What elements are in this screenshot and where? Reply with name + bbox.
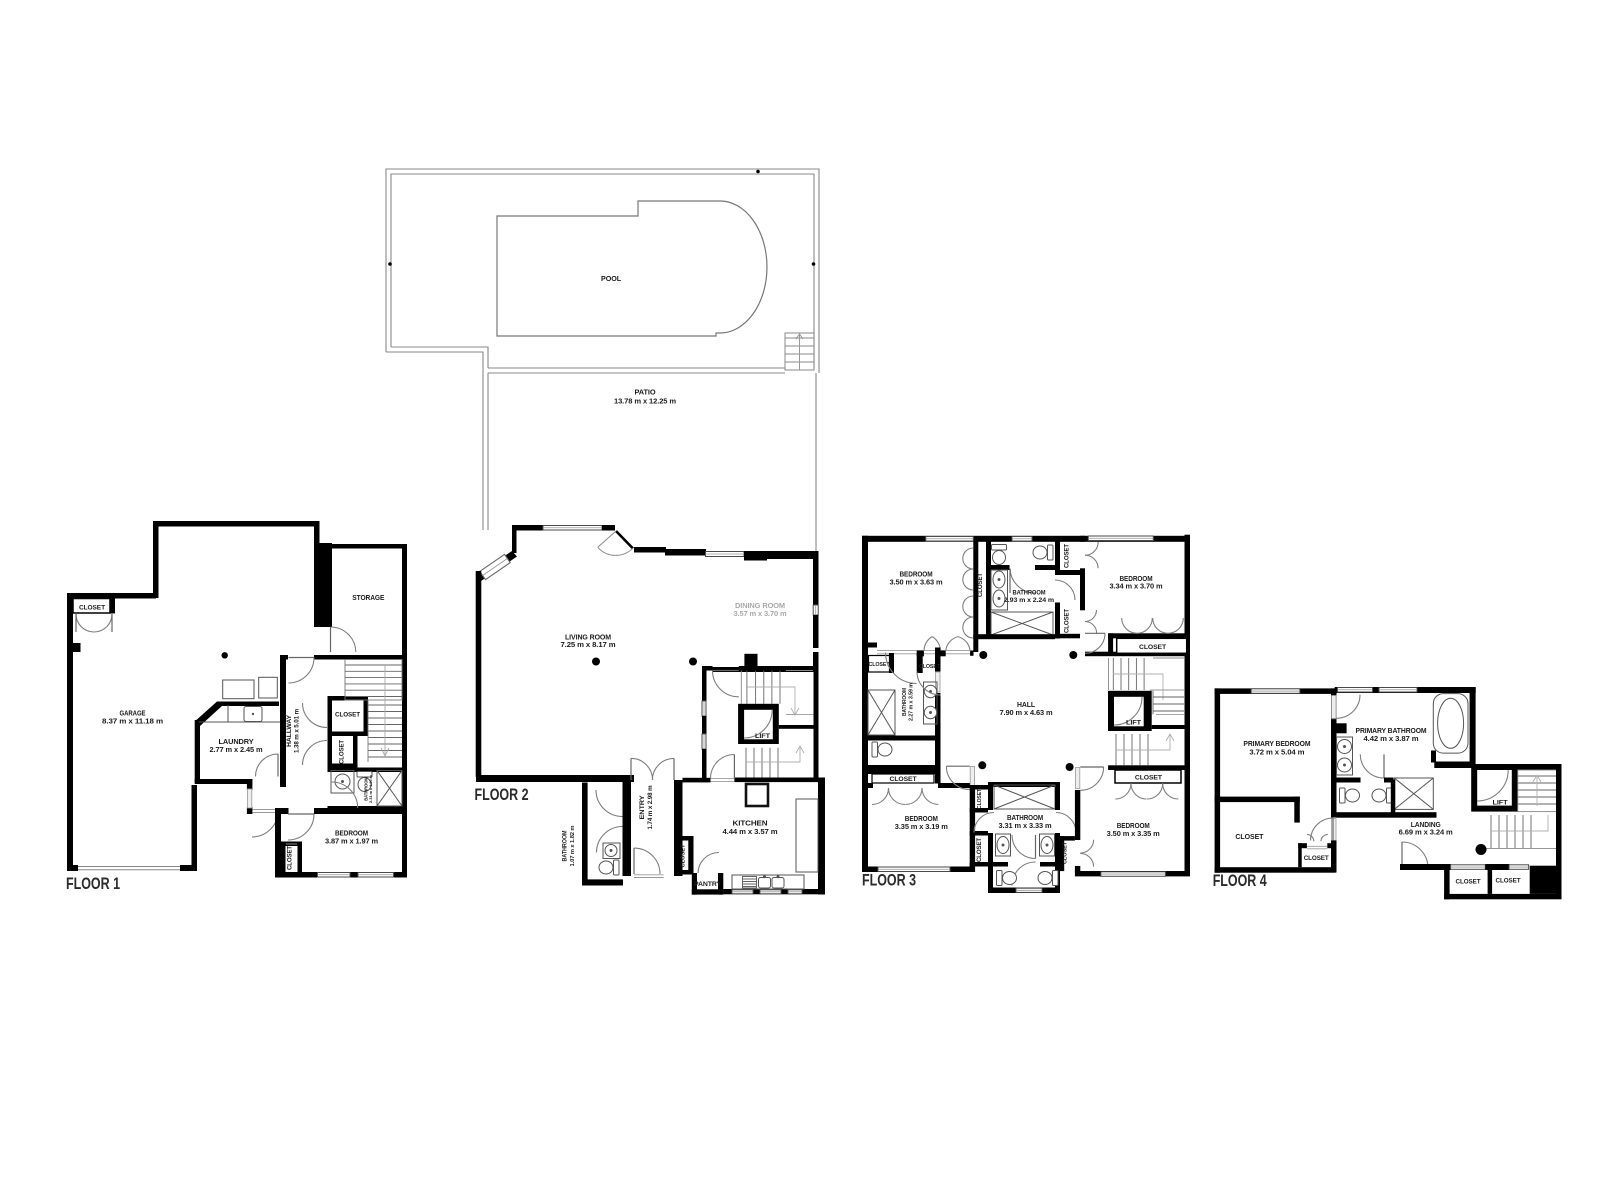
- svg-text:FLOOR 1: FLOOR 1: [66, 875, 120, 893]
- svg-text:2.31 m x 1.20 m: 2.31 m x 1.20 m: [368, 775, 373, 803]
- svg-text:3.72 m x 5.04 m: 3.72 m x 5.04 m: [1249, 749, 1304, 756]
- svg-text:2.27 m x 3.59 m: 2.27 m x 3.59 m: [909, 683, 915, 721]
- svg-text:6.69 m x 3.24 m: 6.69 m x 3.24 m: [1399, 829, 1453, 836]
- svg-text:CLOSET: CLOSET: [681, 844, 687, 868]
- svg-text:BEDROOM: BEDROOM: [905, 814, 938, 823]
- svg-text:3.34 m x 3.70 m: 3.34 m x 3.70 m: [1110, 583, 1163, 590]
- svg-text:1.74 m x 2.98 m: 1.74 m x 2.98 m: [648, 786, 654, 830]
- svg-text:CLOSET: CLOSET: [79, 605, 105, 612]
- svg-text:BATHROOM: BATHROOM: [563, 830, 569, 861]
- svg-text:BEDROOM: BEDROOM: [900, 570, 933, 579]
- svg-text:4.42 m x 3.87 m: 4.42 m x 3.87 m: [1364, 736, 1419, 743]
- svg-text:CLOSET: CLOSET: [1456, 879, 1481, 886]
- svg-text:CLOSET: CLOSET: [335, 712, 360, 719]
- svg-text:CLOSET: CLOSET: [1064, 609, 1070, 633]
- svg-text:PRIMARY BATHROOM: PRIMARY BATHROOM: [1356, 726, 1427, 735]
- svg-text:CLOSET: CLOSET: [890, 776, 918, 783]
- svg-text:7.90 m x 4.63 m: 7.90 m x 4.63 m: [1000, 710, 1053, 717]
- svg-text:CLOSET: CLOSET: [978, 573, 984, 597]
- svg-text:KITCHEN: KITCHEN: [733, 819, 768, 828]
- svg-text:CLOSET: CLOSET: [1496, 878, 1521, 885]
- svg-text:HALLWAY: HALLWAY: [286, 714, 293, 747]
- svg-text:PATIO: PATIO: [635, 388, 657, 397]
- svg-text:FLOOR 2: FLOOR 2: [475, 786, 529, 804]
- svg-text:CLOSET: CLOSET: [340, 740, 346, 764]
- svg-text:BEDROOM: BEDROOM: [335, 829, 368, 838]
- svg-text:CLOSET: CLOSET: [977, 789, 983, 809]
- svg-text:LIVING ROOM: LIVING ROOM: [565, 633, 611, 642]
- svg-text:CLOSET: CLOSET: [288, 846, 294, 870]
- svg-text:2.93 m x 2.24 m: 2.93 m x 2.24 m: [1004, 597, 1054, 604]
- svg-text:GARAGE: GARAGE: [120, 709, 146, 718]
- svg-text:CLOSET: CLOSET: [1135, 775, 1163, 782]
- svg-text:3.50 m x 3.35 m: 3.50 m x 3.35 m: [1107, 831, 1160, 838]
- svg-text:CLOSET: CLOSET: [977, 838, 983, 862]
- svg-text:LAUNDRY: LAUNDRY: [219, 737, 254, 746]
- svg-text:13.78 m x 12.25 m: 13.78 m x 12.25 m: [614, 399, 676, 406]
- svg-text:CLOSET: CLOSET: [1235, 832, 1264, 841]
- svg-text:BATHROOM: BATHROOM: [1007, 813, 1043, 822]
- svg-text:DINING ROOM: DINING ROOM: [735, 601, 785, 610]
- svg-text:CLOSET: CLOSET: [1304, 855, 1329, 862]
- svg-text:PRIMARY BEDROOM: PRIMARY BEDROOM: [1243, 739, 1310, 748]
- svg-text:POOL: POOL: [601, 274, 622, 283]
- svg-text:ENTRY: ENTRY: [639, 795, 646, 820]
- svg-text:1.38 m x 5.01 m: 1.38 m x 5.01 m: [295, 709, 301, 753]
- svg-text:CLOSET: CLOSET: [1064, 544, 1070, 568]
- svg-text:STORAGE: STORAGE: [352, 593, 384, 602]
- svg-text:3.31 m x 3.33 m: 3.31 m x 3.33 m: [999, 823, 1052, 830]
- svg-text:HALL: HALL: [1017, 700, 1036, 709]
- svg-text:1.07 m x 1.82 m: 1.07 m x 1.82 m: [570, 825, 576, 866]
- svg-text:8.37 m x 11.18 m: 8.37 m x 11.18 m: [102, 718, 163, 725]
- svg-text:LIFT: LIFT: [755, 733, 770, 740]
- svg-text:LANDING: LANDING: [1411, 820, 1441, 829]
- svg-text:2.77 m x 2.45 m: 2.77 m x 2.45 m: [210, 747, 263, 754]
- svg-text:BATHROOM: BATHROOM: [902, 688, 908, 716]
- svg-text:CLOSET: CLOSET: [919, 664, 941, 670]
- svg-text:CLOSET: CLOSET: [1063, 841, 1069, 864]
- svg-text:LIFT: LIFT: [1493, 800, 1508, 807]
- svg-text:7.25 m x 8.17 m: 7.25 m x 8.17 m: [561, 642, 616, 649]
- svg-text:PANTRY: PANTRY: [694, 881, 722, 888]
- svg-text:3.87 m x 1.97 m: 3.87 m x 1.97 m: [325, 839, 378, 846]
- svg-text:FLOOR 4: FLOOR 4: [1213, 872, 1267, 890]
- svg-text:3.57 m x 3.70 m: 3.57 m x 3.70 m: [734, 611, 787, 618]
- svg-text:4.44 m x 3.57 m: 4.44 m x 3.57 m: [723, 829, 778, 836]
- svg-text:3.35 m x 3.19 m: 3.35 m x 3.19 m: [895, 824, 948, 831]
- svg-text:LIFT: LIFT: [1126, 720, 1141, 727]
- svg-text:3.50 m x 3.63 m: 3.50 m x 3.63 m: [890, 579, 943, 586]
- svg-text:CLOSET: CLOSET: [1139, 644, 1167, 651]
- svg-text:FLOOR 3: FLOOR 3: [862, 871, 916, 889]
- svg-text:BATHROOM: BATHROOM: [1013, 590, 1046, 597]
- svg-text:BEDROOM: BEDROOM: [1117, 821, 1150, 830]
- svg-text:BEDROOM: BEDROOM: [1120, 574, 1153, 583]
